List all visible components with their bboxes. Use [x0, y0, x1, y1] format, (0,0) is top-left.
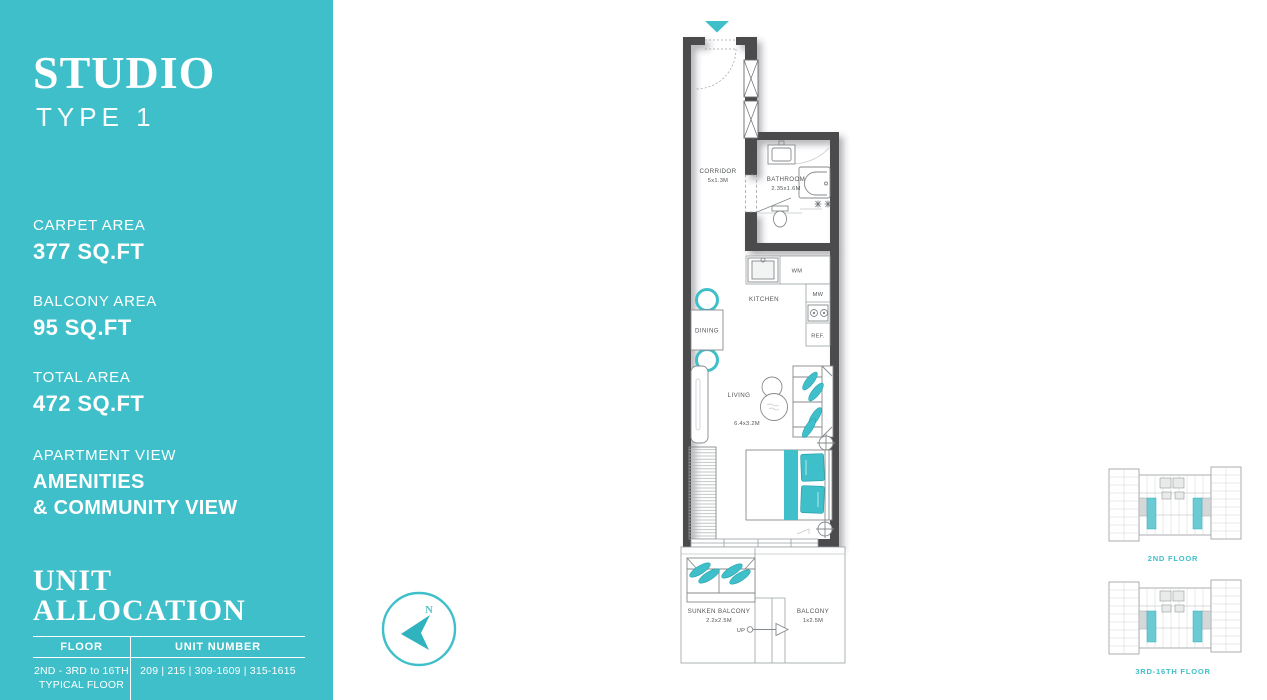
kitchen-sink	[748, 258, 778, 282]
toilet	[772, 206, 788, 227]
room-label-bathroom: BATHROOM	[767, 176, 806, 183]
coffee-tables	[761, 377, 788, 421]
up-label: UP	[737, 628, 746, 634]
room-label-balcony: BALCONY	[797, 608, 829, 615]
drain-symbols	[815, 201, 832, 208]
keyplan-label: 3RD-16TH FLOOR	[1135, 667, 1210, 676]
room-dim-living: 6.4x3.2M	[734, 421, 760, 427]
room-dim-sunken-balcony: 2.2x2.5M	[706, 618, 732, 624]
bed	[746, 450, 832, 534]
appliance-label-wm: WM	[792, 269, 803, 275]
room-dim-balcony: 1x2.5M	[803, 618, 823, 624]
dining-set: DINING	[691, 290, 723, 371]
floor-plan: CORRIDOR 5x1.3M	[681, 21, 845, 663]
room-label-corridor: CORRIDOR	[700, 168, 737, 175]
room-label-living: LIVING	[728, 392, 751, 399]
brochure-page: STUDIO TYPE 1 CARPET AREA 377 SQ.FT BALC…	[0, 0, 1267, 700]
wardrobe	[689, 447, 716, 539]
keyplan-3rd-16th-floor: 3RD-16TH FLOOR	[1109, 580, 1241, 676]
keyplan-label: 2ND FLOOR	[1148, 554, 1199, 563]
room-label-sunken-balcony: SUNKEN BALCONY	[688, 608, 751, 615]
balcony-window	[691, 539, 818, 547]
living-area: LIVING 6.4x3.2M	[728, 366, 835, 452]
keyplan-2nd-floor: 2ND FLOOR	[1109, 467, 1241, 563]
compass-north-label: N	[425, 604, 433, 616]
room-label-kitchen: KITCHEN	[749, 296, 779, 303]
balconies: SUNKEN BALCONY 2.2x2.5M BALCONY 1x2.5M U…	[681, 547, 845, 663]
floor-plan-canvas: CORRIDOR 5x1.3M	[0, 0, 1267, 700]
balcony-bench	[687, 558, 755, 602]
bed-pillow	[801, 454, 825, 482]
bathroom-sink	[768, 141, 795, 164]
appliance-label-ref: REF.	[811, 334, 825, 340]
bathroom: BATHROOM 2.35x1.6M	[746, 141, 832, 227]
kitchen: WM MW REF. KITCHEN	[746, 256, 830, 346]
appliance-label-mw: MW	[813, 292, 824, 298]
room-dim-corridor: 5x1.3M	[708, 178, 728, 184]
compass: N	[383, 593, 455, 665]
room-dim-bathroom: 2.35x1.6M	[771, 186, 800, 192]
entry-door	[696, 40, 736, 89]
entry-arrow-icon	[705, 21, 729, 33]
tv-console	[691, 366, 708, 443]
dining-chair	[697, 290, 718, 311]
room-label-dining: DINING	[695, 328, 719, 335]
sofa	[793, 366, 833, 439]
bed-runner	[784, 450, 798, 520]
bed-pillow	[801, 486, 825, 514]
